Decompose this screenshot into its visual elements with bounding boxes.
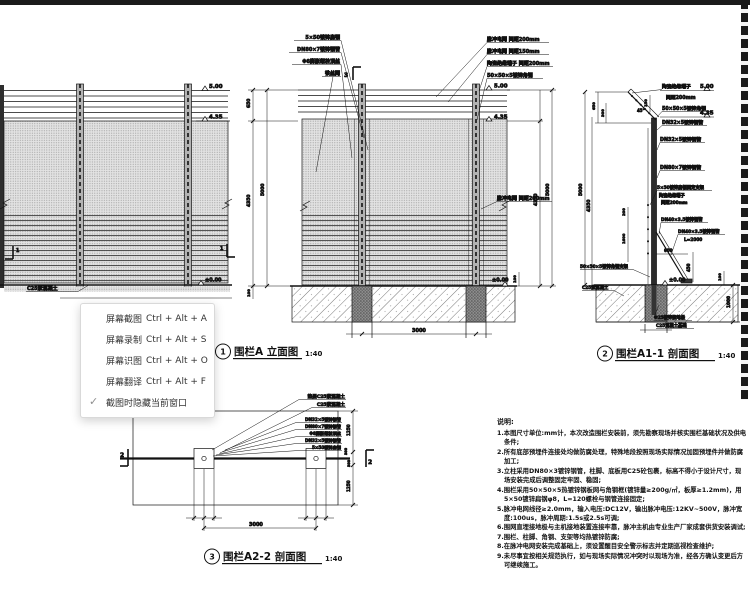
level-base: ±0.00 bbox=[669, 278, 686, 284]
sheet-border-dashed bbox=[741, 0, 748, 400]
label-foundation: C25混凝土基础 bbox=[656, 322, 687, 329]
dim-span: 3000 bbox=[412, 328, 426, 334]
menu-item-shortcut: Ctrl + Alt + O bbox=[146, 356, 208, 366]
callout-concrete: C25素混凝土 bbox=[317, 401, 346, 408]
level-base: ±0.00 bbox=[205, 278, 222, 284]
dim-5000: 5000 bbox=[260, 183, 266, 196]
callout-insulator2: 陶瓷绝缘端子 bbox=[659, 192, 685, 199]
title-number: 3 bbox=[209, 553, 215, 562]
svg-text:DN40×3.5镀锌钢管: DN40×3.5镀锌钢管 bbox=[678, 228, 720, 235]
title-section-a1-1: 2 围栏A1-1 剖面图 1:40 bbox=[598, 346, 736, 361]
drawing-elevation-left: 5.00 4.35 ±0.00 1 1 C25素混凝土 bbox=[0, 84, 235, 298]
dim-5000: 5000 bbox=[545, 183, 551, 196]
menu-item-label: 截图时隐藏当前窗口 bbox=[106, 396, 187, 409]
dim-650: 650 bbox=[591, 102, 596, 110]
dim-150: 150 bbox=[643, 99, 648, 107]
menu-item-screen-capture[interactable]: 屏幕截图 Ctrl + Alt + A bbox=[81, 308, 214, 329]
footing bbox=[352, 286, 372, 322]
level-top: 5.00 bbox=[494, 84, 508, 90]
title-text: 围栏A2-2 剖面图 bbox=[223, 550, 306, 563]
bottom-dimension: 3000 bbox=[346, 322, 492, 338]
screenshot-context-menu: 屏幕截图 Ctrl + Alt + A 屏幕录制 Ctrl + Alt + S … bbox=[80, 303, 215, 418]
menu-item-shortcut: Ctrl + Alt + S bbox=[146, 335, 206, 345]
dim-4350: 4350 bbox=[586, 199, 592, 212]
cad-drawing-screen: 5.00 4.35 ±0.00 1 1 C25素混凝土 bbox=[0, 0, 750, 599]
notes-block: 说明: 1.本图尺寸单位:mm计，本次改造围栏安装前，须先勘察现场并核实围栏基础… bbox=[497, 417, 747, 571]
dim-curb: 100 bbox=[512, 275, 517, 283]
pulse-wires bbox=[4, 91, 230, 119]
title-elevation-a: 1 围栏A 立面图 1:40 bbox=[216, 344, 323, 359]
lower-wire-band bbox=[4, 212, 228, 283]
note-line: 5.脉冲电网线径≥2.0mm，输入电压:DC12V，输出脉冲电压:12KV~50… bbox=[497, 505, 747, 524]
title-scale: 1:40 bbox=[325, 555, 343, 563]
label-concrete: C25素混凝土 bbox=[582, 284, 609, 291]
svg-text:DN80×7镀锌钢管: DN80×7镀锌钢管 bbox=[305, 423, 342, 430]
title-underline bbox=[233, 358, 302, 359]
callout-insulator: 陶瓷绝缘端子 bbox=[662, 83, 691, 90]
title-number: 1 bbox=[220, 348, 226, 357]
svg-text:2: 2 bbox=[368, 459, 372, 466]
callout-pulse-200: 脉冲电网 间距200mm bbox=[486, 36, 540, 43]
callout-angle-steel: 50×50×5镀锌角钢 bbox=[662, 105, 706, 112]
note-line: 6.围网直埋接地极与主机接地装置连接牢靠，脉冲主机由专业生产厂家成套供货安装调试… bbox=[497, 523, 747, 532]
menu-item-label: 屏幕截图 bbox=[106, 312, 142, 325]
dim-curb: 100 bbox=[717, 273, 722, 281]
mid-dimensions: 200 1600 bbox=[621, 207, 628, 262]
level-top: 5.00 bbox=[700, 84, 714, 90]
level-top: 5.00 bbox=[209, 84, 223, 90]
note-line: 9.未尽事宜按相关规范执行，如与现场实际情况冲突时以现场为准，经各方确认变更后方… bbox=[497, 552, 747, 571]
notes-heading: 说明: bbox=[497, 417, 747, 427]
title-section-a2-2: 3 围栏A2-2 剖面图 1:40 bbox=[205, 549, 343, 564]
dim-4350: 4350 bbox=[246, 194, 252, 207]
dim-650: 650 bbox=[246, 99, 252, 108]
callout-blinding: 垫层C25素混凝土 bbox=[308, 393, 346, 400]
callout-pulse-150: 脉冲电网 间距150mm bbox=[486, 48, 540, 55]
note-line: 2.所有底部预埋件连接处均做防腐处理，特殊地段按照现场实际情况加固预埋件并做防腐… bbox=[497, 448, 747, 467]
post-footing-plan bbox=[194, 449, 214, 469]
level-mid: 4.35 bbox=[209, 115, 223, 121]
callout-pipe: DN80×7镀锌钢管 bbox=[297, 46, 340, 53]
left-dimension-chain: 650 4350 5000 100 bbox=[246, 88, 298, 299]
svg-text:Φ8膨胀螺栓顶丝: Φ8膨胀螺栓顶丝 bbox=[309, 430, 341, 437]
right-dimension-chain: 4350 5000 100 bbox=[507, 88, 556, 288]
menu-item-label: 屏幕识图 bbox=[106, 354, 142, 367]
menu-item-label: 屏幕录制 bbox=[106, 333, 142, 346]
callout-angle-steel: 50×50×5镀锌角钢 bbox=[487, 72, 533, 79]
dim-angle: 45° bbox=[637, 108, 645, 113]
title-scale: 1:40 bbox=[305, 350, 323, 358]
svg-text:DN40×3.5镀锌钢管: DN40×3.5镀锌钢管 bbox=[661, 216, 703, 223]
callout-pipe3: DN80×7镀锌钢管 bbox=[660, 164, 701, 171]
menu-item-shortcut: Ctrl + Alt + A bbox=[146, 314, 207, 324]
note-line: 3.立柱采用DN80×3镀锌钢管，柱脚、底板用C25砼包裹，标高不得小于设计尺寸… bbox=[497, 467, 747, 486]
dim-200: 200 bbox=[621, 208, 626, 216]
top-arm: 45° 150 bbox=[628, 89, 659, 120]
svg-text:3: 3 bbox=[344, 72, 348, 79]
callout-insulator: 陶瓷绝缘端子 间距200mm bbox=[487, 60, 550, 67]
callout-insulator2-gap: 间距200mm bbox=[661, 199, 688, 206]
callout-pipe1: DN32×5镀锌钢管 bbox=[662, 119, 703, 126]
dim-1600: 1600 bbox=[621, 233, 626, 244]
dim-300: 300 bbox=[600, 109, 605, 117]
note-line: 4.围栏采用50×50×5热镀锌钢板网与角钢框(镀锌量≥200g/㎡，板厚≥1.… bbox=[497, 486, 747, 505]
title-text: 围栏A1-1 剖面图 bbox=[616, 347, 699, 360]
callout-insulator-gap: 间距200mm bbox=[666, 94, 696, 101]
label-earth-rod: Φ25镀锌接地极 bbox=[654, 314, 686, 321]
callout-pipe2: DN32×5镀锌钢管 bbox=[660, 136, 701, 143]
dim-100: 100 bbox=[246, 289, 251, 297]
note-line: 7.围栏、柱脚、角钢、支架等均热镀锌防腐; bbox=[497, 533, 747, 542]
svg-text:1: 1 bbox=[16, 248, 19, 254]
dim-1250: 1250 bbox=[346, 424, 351, 436]
callout-flat-steel: 5×50镀锌扁钢 bbox=[305, 34, 340, 41]
svg-text:2: 2 bbox=[120, 452, 124, 459]
note-line: 1.本图尺寸单位:mm计，本次改造围栏安装前，须先勘察现场并核实围栏基础状况及供… bbox=[497, 429, 747, 448]
post-footing-plan bbox=[306, 449, 326, 469]
svg-text:5×50镀锌扁钢: 5×50镀锌扁钢 bbox=[312, 444, 341, 451]
title-scale: 1:40 bbox=[718, 352, 736, 360]
title-number: 2 bbox=[602, 350, 608, 359]
svg-text:1: 1 bbox=[220, 246, 223, 252]
dim-span: 3000 bbox=[249, 522, 263, 528]
menu-item-screen-translate[interactable]: 屏幕翻译 Ctrl + Alt + F bbox=[81, 371, 214, 392]
dim-1250: 1250 bbox=[346, 480, 351, 492]
svg-text:C25素混凝土: C25素混凝土 bbox=[27, 285, 58, 292]
drawing-elevation-main: 3000 650 4350 5000 100 bbox=[246, 34, 556, 338]
svg-text:DN32×5镀锌钢管: DN32×5镀锌钢管 bbox=[305, 416, 342, 423]
menu-item-hide-window-toggle[interactable]: ✓ 截图时隐藏当前窗口 bbox=[81, 392, 214, 413]
label-bracket: 50×50×5镀锌角钢支架 bbox=[580, 263, 629, 270]
svg-text:L=2000: L=2000 bbox=[684, 237, 702, 243]
dim-300: 300 bbox=[344, 447, 348, 455]
footing bbox=[466, 286, 486, 322]
dim-300: 300 bbox=[347, 459, 351, 467]
svg-text:脉冲电网 间距200mm: 脉冲电网 间距200mm bbox=[496, 195, 550, 202]
plan-callouts: 垫层C25素混凝土 C25素混凝土 DN32×5镀锌钢管 DN80×7镀锌钢管 … bbox=[212, 393, 346, 456]
check-icon: ✓ bbox=[89, 395, 98, 408]
note-line: 8.在脉冲电网安装完成基础上，须设置醒目安全警示标志并定期巡视检查维护; bbox=[497, 542, 747, 551]
dim-1000: 1000 bbox=[726, 296, 732, 308]
dim-600: 600 bbox=[664, 248, 673, 253]
dim-5000: 5000 bbox=[578, 183, 584, 196]
level-mid: 4.35 bbox=[494, 115, 508, 121]
callouts-right: 脉冲电网 间距200mm 脉冲电网 间距150mm 陶瓷绝缘端子 间距200mm… bbox=[436, 36, 553, 120]
menu-item-screen-ocr[interactable]: 屏幕识图 Ctrl + Alt + O bbox=[81, 350, 214, 371]
drawing-section-a1-1: 45° 150 650 300 5000 4350 200 1600 bbox=[578, 83, 740, 333]
menu-item-shortcut: Ctrl + Alt + F bbox=[146, 377, 206, 387]
callout-anchor-bolt: Φ8膨胀螺栓顶丝 bbox=[302, 58, 340, 65]
dim-450: 450 bbox=[686, 263, 691, 272]
menu-item-screen-record[interactable]: 屏幕录制 Ctrl + Alt + S bbox=[81, 329, 214, 350]
callout-flat-bracket: 5×50镀锌扁钢固定支架 bbox=[657, 184, 705, 191]
callout-wire-mesh: 铁丝网 bbox=[325, 70, 340, 77]
bottom-dimensions: 3000 bbox=[186, 469, 334, 531]
menu-item-label: 屏幕翻译 bbox=[106, 375, 142, 388]
left-dimension-chain: 5000 4350 bbox=[578, 90, 592, 287]
title-underline bbox=[222, 563, 322, 564]
title-text: 围栏A 立面图 bbox=[234, 345, 298, 358]
screen-top-edge bbox=[0, 0, 750, 5]
cut-edge-strip bbox=[0, 85, 4, 288]
svg-text:DN32×5镀锌钢管: DN32×5镀锌钢管 bbox=[305, 437, 342, 444]
level-base: ±0.00 bbox=[492, 278, 509, 284]
title-underline bbox=[615, 360, 715, 361]
